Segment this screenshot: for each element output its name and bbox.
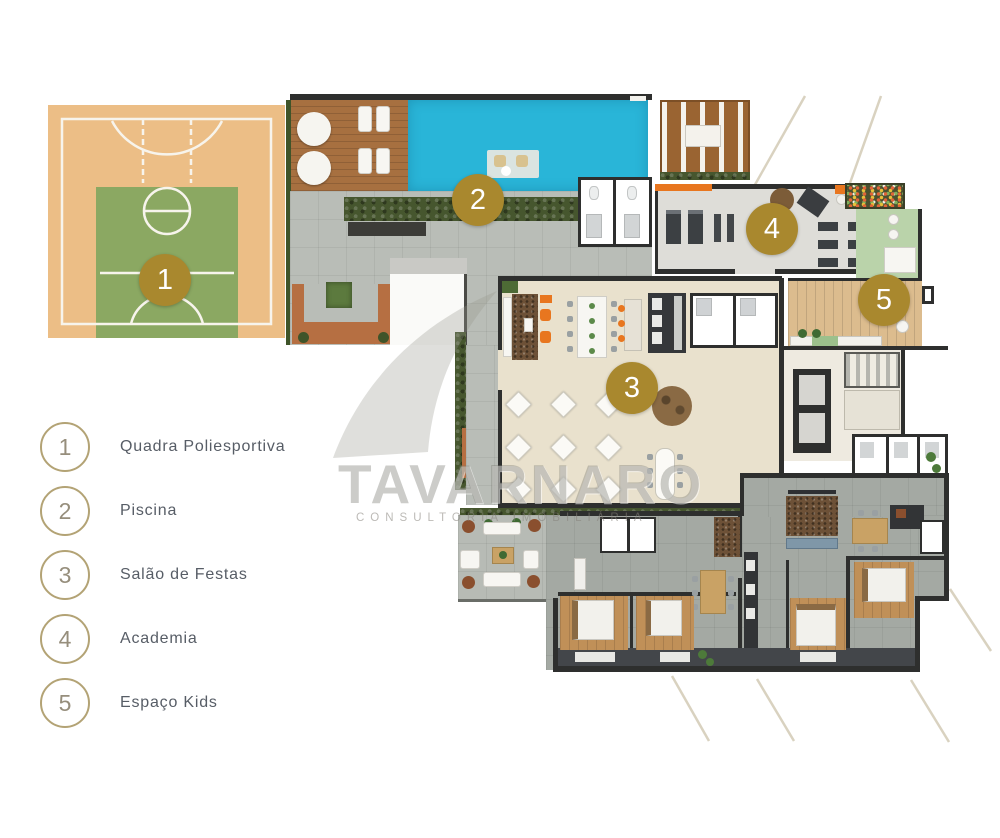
appliance <box>896 509 906 518</box>
party-round-rug <box>652 386 692 426</box>
legend-number-circle: 3 <box>40 550 90 600</box>
side-path <box>466 345 498 505</box>
guest-table <box>554 438 573 457</box>
terrace-planter <box>462 576 475 589</box>
chair <box>567 331 573 337</box>
chair <box>647 454 653 460</box>
core-top-wall <box>784 346 948 350</box>
toilet <box>589 186 599 200</box>
legend-number: 2 <box>59 498 72 525</box>
gym-orange-accent <box>655 184 712 191</box>
plant <box>932 464 941 473</box>
service-room-divider <box>886 436 889 474</box>
chair <box>728 604 734 610</box>
gym-bottom-wall <box>655 269 735 274</box>
core-right-wall <box>901 349 905 435</box>
living-rug <box>786 496 838 536</box>
lounge-sofa <box>503 297 512 357</box>
chair <box>611 331 617 337</box>
fixture <box>894 442 908 458</box>
plant <box>798 329 807 338</box>
changing-rooms-divider <box>613 180 616 244</box>
chair <box>858 510 864 516</box>
legend-item-piscina: 2 Piscina <box>40 486 177 536</box>
party-top-wall <box>498 276 782 281</box>
bathroom-divider <box>627 519 630 551</box>
chair <box>872 510 878 516</box>
guest-table <box>509 480 528 499</box>
gym-bench <box>818 258 838 267</box>
apt-bottom-wall <box>553 666 920 672</box>
appliance <box>652 298 662 310</box>
guest-table <box>599 480 618 499</box>
guest-table <box>509 395 528 414</box>
bed <box>646 600 682 636</box>
bathroom-divider <box>733 296 736 345</box>
orange-pot <box>540 295 552 303</box>
balcony-ledge <box>922 286 934 304</box>
elevator-cab <box>799 413 825 443</box>
plate <box>589 303 595 309</box>
apt-dining-table <box>852 518 888 544</box>
legend-number-circle: 4 <box>40 614 90 664</box>
legend-label: Piscina <box>120 502 177 520</box>
legend-number-circle: 1 <box>40 422 90 472</box>
toilet <box>627 186 637 200</box>
bed <box>862 568 906 602</box>
bar-counter <box>624 299 642 351</box>
bush-square <box>326 282 352 308</box>
apt-top-wall <box>560 511 744 516</box>
apt-arm-top-wall <box>740 473 948 478</box>
apt-right-lower-wall <box>915 596 920 672</box>
bar-stool <box>618 305 625 312</box>
lounge-table <box>524 318 533 332</box>
chair <box>567 316 573 322</box>
floorplan-canvas: 1 2 3 4 5 TAVARNARO CONSULTORIA IMOBILIÁ… <box>0 0 1000 838</box>
appliance <box>746 584 755 595</box>
chair <box>872 546 878 552</box>
sun-lounger <box>376 106 390 132</box>
plate <box>589 333 595 339</box>
chair <box>611 316 617 322</box>
badge-number: 2 <box>470 184 486 217</box>
terrace-sofa <box>460 550 480 569</box>
shower-pad <box>624 214 640 238</box>
guest-table <box>509 438 528 457</box>
legend-label: Academia <box>120 630 198 648</box>
umbrella-icon <box>297 151 331 185</box>
plant <box>499 551 507 559</box>
planter-box <box>348 222 426 236</box>
legend-number-circle: 2 <box>40 486 90 536</box>
legend-item-kids: 5 Espaço Kids <box>40 678 218 728</box>
kids-pouf <box>888 229 899 240</box>
terrace-sofa <box>523 550 539 569</box>
chair <box>567 301 573 307</box>
entry-rug <box>714 517 740 557</box>
fixture <box>860 442 874 458</box>
sun-lounger <box>358 148 372 174</box>
bush <box>378 332 389 343</box>
chair <box>692 576 698 582</box>
plant <box>926 452 936 462</box>
weight-rack <box>727 214 734 242</box>
legend-number: 4 <box>59 626 72 653</box>
area-badge-salao: 3 <box>606 362 658 414</box>
chair <box>567 346 573 352</box>
kids-table <box>884 247 916 273</box>
lounge-armchair <box>540 331 551 343</box>
guest-table <box>554 480 573 499</box>
lounge-armchair <box>540 309 551 321</box>
gym-bench <box>818 222 838 231</box>
bush <box>298 332 309 343</box>
area-badge-quadra: 1 <box>139 254 191 306</box>
kids-pouf <box>888 214 899 225</box>
apt-bathroom <box>920 520 944 554</box>
plant <box>698 650 707 659</box>
badge-number: 5 <box>876 284 892 317</box>
umbrella-icon <box>297 112 331 146</box>
weight-rack <box>714 214 721 242</box>
shower-pad <box>586 214 602 238</box>
chair <box>858 546 864 552</box>
chair <box>647 482 653 488</box>
terrace-planter <box>527 575 540 588</box>
lounge-planter <box>502 281 518 293</box>
guest-table <box>599 438 618 457</box>
pergola-table <box>685 125 721 147</box>
dresser <box>660 652 690 662</box>
legend-item-salao: 3 Salão de Festas <box>40 550 248 600</box>
bed <box>572 600 614 640</box>
legend-number: 1 <box>59 434 72 461</box>
appliance <box>746 608 755 619</box>
bar-stool <box>618 335 625 342</box>
bar-stool <box>618 320 625 327</box>
badge-number: 1 <box>157 264 173 297</box>
party-left-wall <box>498 390 502 508</box>
appliance <box>652 315 662 327</box>
bed <box>796 604 836 646</box>
apt-arm-left-wall <box>740 473 744 513</box>
appliance <box>746 560 755 571</box>
legend-item-academia: 4 Academia <box>40 614 198 664</box>
dresser <box>800 652 836 662</box>
legend-label: Quadra Poliesportiva <box>120 438 285 456</box>
service-structure-roof <box>390 258 467 274</box>
chair <box>728 576 734 582</box>
legend-label: Salão de Festas <box>120 566 248 584</box>
elevator-cab <box>799 375 825 405</box>
legend-item-quadra: 1 Quadra Poliesportiva <box>40 422 285 472</box>
chair <box>677 482 683 488</box>
plant <box>706 658 714 666</box>
service-room-divider <box>917 436 920 474</box>
terrace-sofa <box>483 522 521 535</box>
stair-landing <box>844 390 900 430</box>
legend-number: 3 <box>59 562 72 589</box>
pool-chair <box>516 155 528 167</box>
sun-lounger <box>358 106 372 132</box>
apt-sofa <box>574 558 586 590</box>
apt-step-wall <box>918 596 949 601</box>
guest-table <box>554 395 573 414</box>
chair <box>677 468 683 474</box>
chair <box>728 590 734 596</box>
chair <box>611 346 617 352</box>
counter <box>674 296 682 350</box>
terrace-sofa <box>483 572 521 587</box>
kids-play-mat <box>845 183 905 209</box>
terrace-planter <box>462 520 475 533</box>
badge-number: 4 <box>764 213 780 246</box>
chair <box>611 301 617 307</box>
plate <box>589 348 595 354</box>
area-badge-kids: 5 <box>858 274 910 326</box>
chair <box>647 468 653 474</box>
area-badge-academia: 4 <box>746 203 798 255</box>
badge-number: 3 <box>624 372 640 405</box>
tv-panel <box>788 490 836 494</box>
pool-side-table <box>501 166 511 176</box>
legend-label: Espaço Kids <box>120 694 218 712</box>
terrace-planter <box>528 519 541 532</box>
treadmill <box>666 210 681 244</box>
legend-number-circle: 5 <box>40 678 90 728</box>
shower-pad <box>696 298 712 316</box>
legend-number: 5 <box>59 690 72 717</box>
chair <box>677 454 683 460</box>
apt-right-wall <box>944 473 949 600</box>
dresser <box>575 652 615 662</box>
treadmill <box>688 210 703 244</box>
plate <box>589 318 595 324</box>
area-badge-piscina: 2 <box>452 174 504 226</box>
appliance <box>652 332 662 344</box>
pergola-hedge <box>660 172 750 180</box>
plant <box>812 329 821 338</box>
gym-bench <box>818 240 838 249</box>
staircase <box>844 352 900 388</box>
shower-pad <box>740 298 756 316</box>
pool-ladder <box>630 96 646 101</box>
sun-lounger <box>376 148 390 174</box>
apt-dining-table <box>700 570 726 614</box>
apt-sofa-blue <box>786 538 838 549</box>
partition <box>846 556 944 560</box>
banquet-table <box>655 448 675 500</box>
